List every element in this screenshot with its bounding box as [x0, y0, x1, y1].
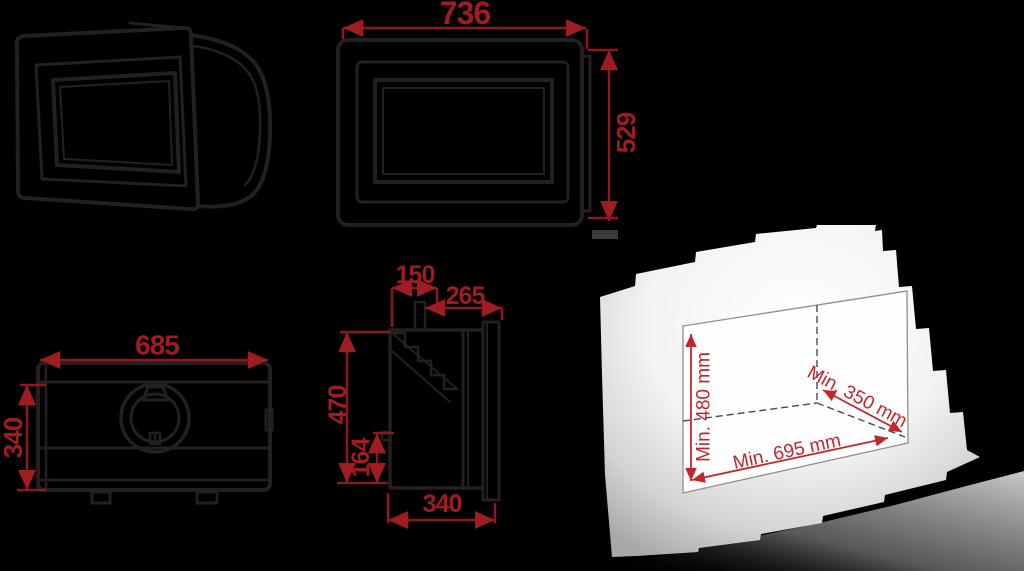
side-top-depth-dim-label: 265 — [446, 282, 486, 310]
niche-cutout-view: Min. 480 mm Min. 695 mm Min. 350 mm — [585, 225, 1024, 571]
perspective-view — [0, 20, 300, 250]
front-frame-profile — [483, 322, 499, 500]
side-height-dim-label: 470 — [325, 386, 352, 425]
perspective-view-drawing — [0, 20, 300, 250]
rear-height-dim-label: 340 — [0, 417, 28, 458]
side-view: 150 265 470 164 340 — [325, 255, 525, 545]
front-view-drawing: 736 529 — [335, 0, 640, 240]
side-view-drawing: 150 265 470 164 340 — [325, 255, 525, 545]
rear-view-drawing: 685 340 — [0, 330, 300, 545]
foot-left — [92, 492, 110, 503]
foot-right — [197, 492, 217, 503]
niche-min-height-label: Min. 480 mm — [694, 352, 715, 462]
front-height-dim-label: 529 — [611, 112, 640, 153]
niche-cutout-drawing: Min. 480 mm Min. 695 mm Min. 350 mm — [585, 225, 1024, 571]
front-view: 736 529 — [335, 0, 640, 240]
technical-drawing-canvas: 736 529 — [0, 0, 1024, 571]
side-top-inset-dim-label: 150 — [396, 261, 435, 289]
rear-width-dim-label: 685 — [135, 330, 179, 361]
mask-fragment — [592, 230, 618, 239]
side-lower-height-dim-label: 164 — [347, 438, 375, 478]
front-width-dim-label: 736 — [440, 0, 491, 31]
rear-view: 685 340 — [0, 330, 300, 545]
side-bottom-depth-dim-label: 340 — [423, 490, 462, 518]
